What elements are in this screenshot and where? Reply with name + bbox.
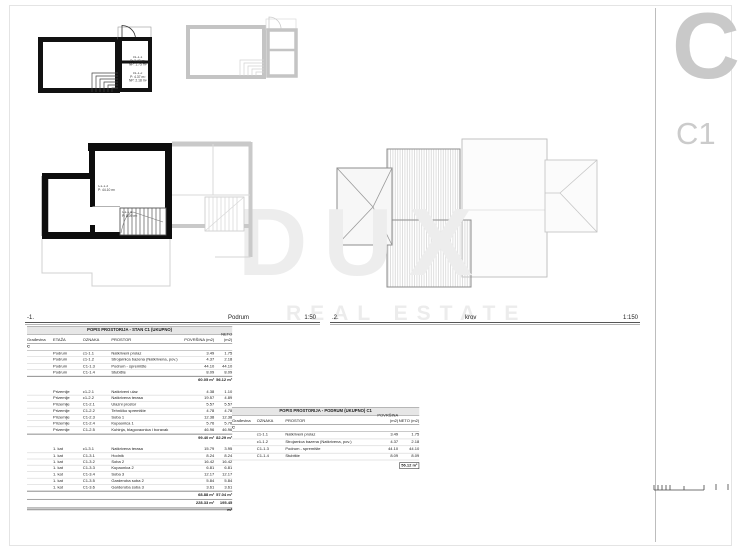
- ghost-plan-top: [180, 5, 310, 100]
- roof-section-hip-right: [545, 160, 597, 232]
- plan-room-outline: [41, 40, 118, 91]
- rooms-table-main: POPIS PROSTORIJA - STAN C1 (UKUPNO) Građ…: [27, 326, 232, 510]
- title-roof: .2. krov 1:150: [330, 310, 640, 323]
- table-row: PrizemljeC1-2.5Kuhinja, blagovaonica i b…: [27, 427, 232, 433]
- title-scale: 1:50: [304, 315, 316, 321]
- table-row: C1-1.4Stubište8.098.09: [232, 453, 419, 460]
- section-total-row: 60.05 m² 56.12 m²: [27, 376, 232, 384]
- title-label: krov: [465, 315, 476, 321]
- table-group-label: C: [232, 425, 419, 432]
- room-label-c1-1-4: C1-1.4 P: 8.09 m²: [122, 211, 137, 218]
- room-label-c1-1-3: C1-1.3 P: 44.10 m²: [98, 185, 115, 192]
- graphic-scale: [652, 482, 737, 494]
- table-row: 1. katC1-3.6Garderoba soba 33.613.61: [27, 485, 232, 491]
- drawing-sheet: DUX REAL ESTATE: [0, 0, 740, 550]
- panel-divider: [655, 8, 656, 542]
- title-scale: 1:150: [623, 315, 638, 321]
- table-row: c1-1.1Natkriveni prolaz3.491.75: [232, 432, 419, 439]
- room-label-c1-1-1: c1-1.1 P: 3.49 m² NP: 1.75 m²: [124, 56, 152, 67]
- title-index: -1.: [27, 315, 34, 321]
- table-title: POPIS PROSTORIJA - STAN C1 (UKUPNO): [27, 326, 232, 335]
- podrum-total-boxed: 56.12 m²: [399, 462, 419, 469]
- table-header: Građevina ETAŽA OZNAKA PROSTOR POVRŠINA …: [27, 335, 232, 344]
- section-total-row: 68.88 m² 57.04 m²: [27, 491, 232, 499]
- table-row: PodrumC1-1.4Stubište8.098.09: [27, 370, 232, 376]
- title-basement: -1. Podrum 1:50: [25, 310, 320, 323]
- table-end-rule: [27, 508, 232, 511]
- podrum-plan-large: [35, 135, 280, 300]
- sheet-letter: C: [672, 0, 740, 100]
- section-total-row: 99.40 m² 82.29 m²: [27, 434, 232, 442]
- table-group-label: C: [27, 344, 232, 351]
- title-index: .2.: [332, 315, 339, 321]
- room-label-c1-1-2: c1-1.2 P: 4.37 m² NP: 2.18 m²: [124, 72, 152, 83]
- grand-total-row: 228.33 m² 195.45 m²: [27, 499, 232, 507]
- table-header: Građevina OZNAKA PROSTOR POVRŠINA (m2) N…: [232, 416, 419, 425]
- table-row: C1-1.3Podrum - spremište44.1044.10: [232, 446, 419, 453]
- rooms-table-podrum: POPIS PROSTORIJA - PODRUM (UKUPNO) C1 Gr…: [232, 407, 419, 469]
- terrace-outline: [42, 239, 170, 286]
- table-row: c1-1.2Strojarnica bazena (Natkrivena, po…: [232, 439, 419, 446]
- ghost-staircase: [205, 197, 244, 231]
- title-label: Podrum: [228, 315, 249, 321]
- sheet-code: C1: [676, 116, 716, 152]
